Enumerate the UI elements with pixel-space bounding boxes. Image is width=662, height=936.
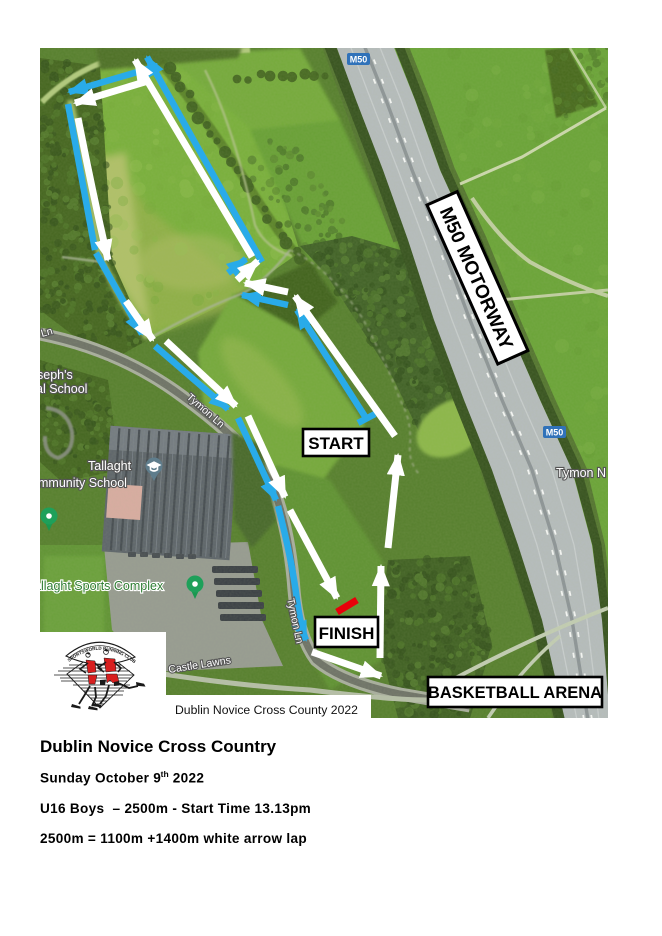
svg-text:allaght Sports Complex: allaght Sports Complex [34, 579, 164, 593]
svg-text:M50: M50 [546, 428, 564, 438]
svg-text:Tymon N: Tymon N [556, 466, 606, 480]
svg-text:BASKETBALL ARENA: BASKETBALL ARENA [428, 684, 602, 702]
svg-text:Dublin Novice Cross County 202: Dublin Novice Cross County 2022 [175, 703, 358, 717]
svg-text:Tallaght: Tallaght [88, 459, 132, 473]
svg-text:al School: al School [36, 382, 87, 396]
svg-text:seph's: seph's [37, 368, 73, 382]
svg-text:mmunity School: mmunity School [38, 476, 127, 490]
svg-text:M50: M50 [350, 55, 368, 65]
svg-text:START: START [308, 434, 364, 453]
svg-text:FINISH: FINISH [319, 624, 375, 643]
